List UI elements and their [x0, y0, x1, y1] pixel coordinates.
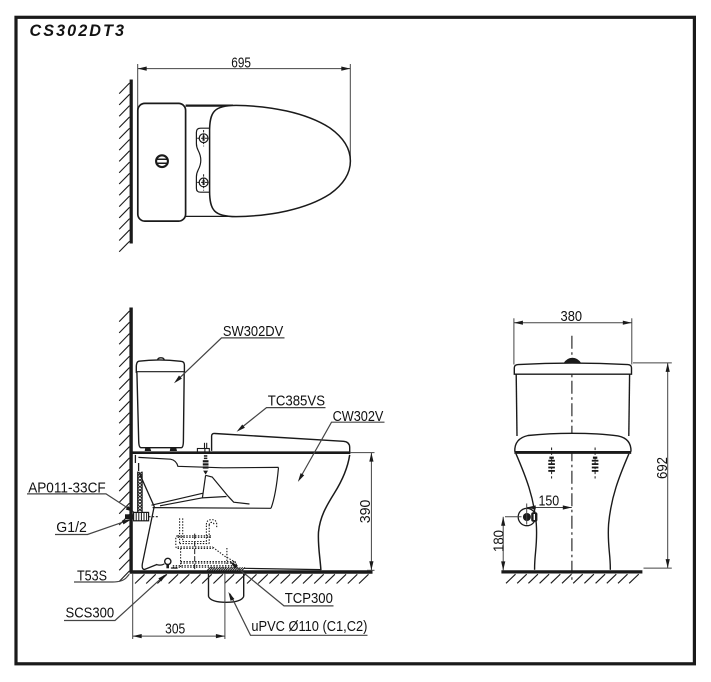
svg-text:692: 692: [655, 457, 671, 479]
svg-text:150: 150: [538, 493, 559, 509]
svg-text:uPVC Ø110 (C1,C2): uPVC Ø110 (C1,C2): [251, 619, 367, 635]
svg-text:695: 695: [231, 56, 251, 72]
svg-text:180: 180: [492, 530, 508, 552]
svg-text:SCS300: SCS300: [66, 605, 115, 621]
svg-text:390: 390: [358, 500, 374, 524]
svg-text:G1/2: G1/2: [56, 520, 87, 536]
svg-text:TCP300: TCP300: [285, 591, 333, 607]
svg-text:305: 305: [165, 622, 185, 638]
svg-text:380: 380: [561, 309, 583, 325]
